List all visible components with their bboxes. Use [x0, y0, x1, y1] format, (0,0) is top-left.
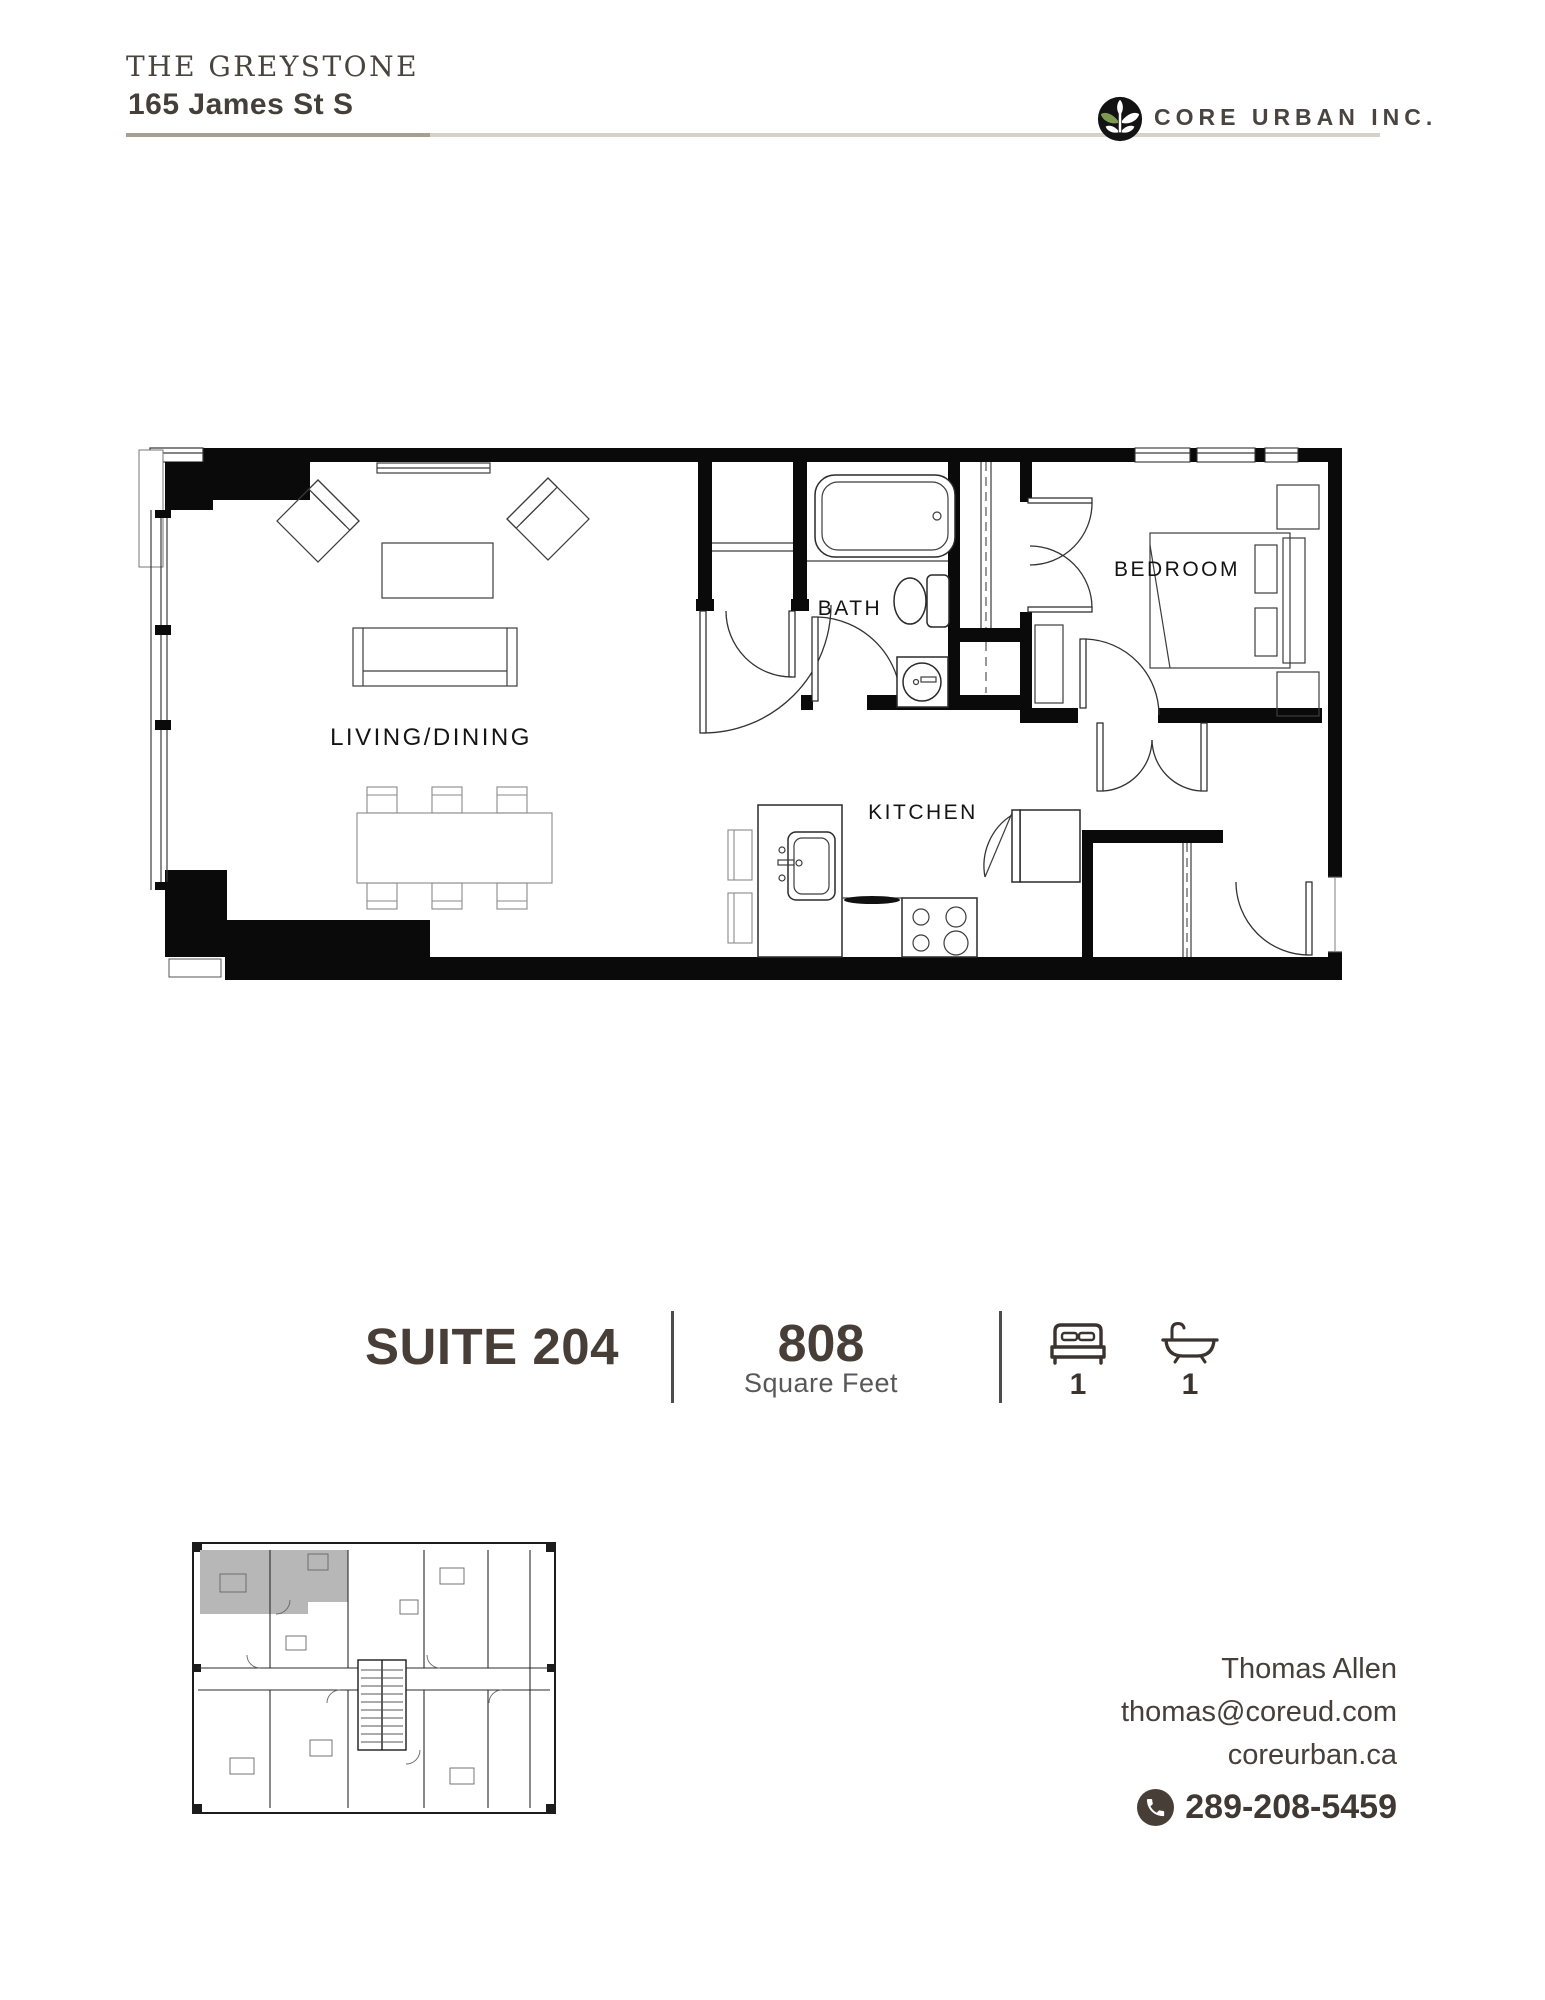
contact-name: Thomas Allen	[900, 1648, 1397, 1691]
contact-block: Thomas Allen thomas@coreud.com coreurban…	[900, 1648, 1397, 1829]
bath-count: 1	[1158, 1368, 1222, 1402]
building-key-plan	[190, 1540, 558, 1818]
floor-plan: LIVING/DINING BATH BEDROOM KITCHEN	[115, 445, 1350, 985]
suite-area-label: Square Feet	[727, 1368, 915, 1399]
bathtub-icon	[1158, 1318, 1222, 1365]
bed-icon	[1047, 1319, 1109, 1365]
phone-icon	[1137, 1789, 1174, 1826]
header-divider	[126, 133, 1380, 137]
contact-website: coreurban.ca	[900, 1734, 1397, 1777]
info-divider-2	[999, 1311, 1002, 1403]
building-address: 165 James St S	[128, 88, 353, 122]
building-name: THE GREYSTONE	[126, 50, 419, 83]
contact-email: thomas@coreud.com	[900, 1691, 1397, 1734]
kitchen-label: KITCHEN	[868, 801, 978, 824]
bed-count: 1	[1047, 1368, 1109, 1402]
living-dining-label: LIVING/DINING	[330, 724, 532, 751]
bath-label: BATH	[818, 597, 882, 620]
company-name: CORE URBAN INC.	[1154, 104, 1437, 131]
suite-title: SUITE 204	[356, 1317, 628, 1376]
company-logo-icon	[1096, 95, 1144, 143]
contact-phone: 289-208-5459	[1185, 1786, 1397, 1829]
info-divider-1	[671, 1311, 674, 1403]
suite-area-value: 808	[737, 1314, 905, 1374]
bedroom-label: BEDROOM	[1114, 558, 1240, 581]
